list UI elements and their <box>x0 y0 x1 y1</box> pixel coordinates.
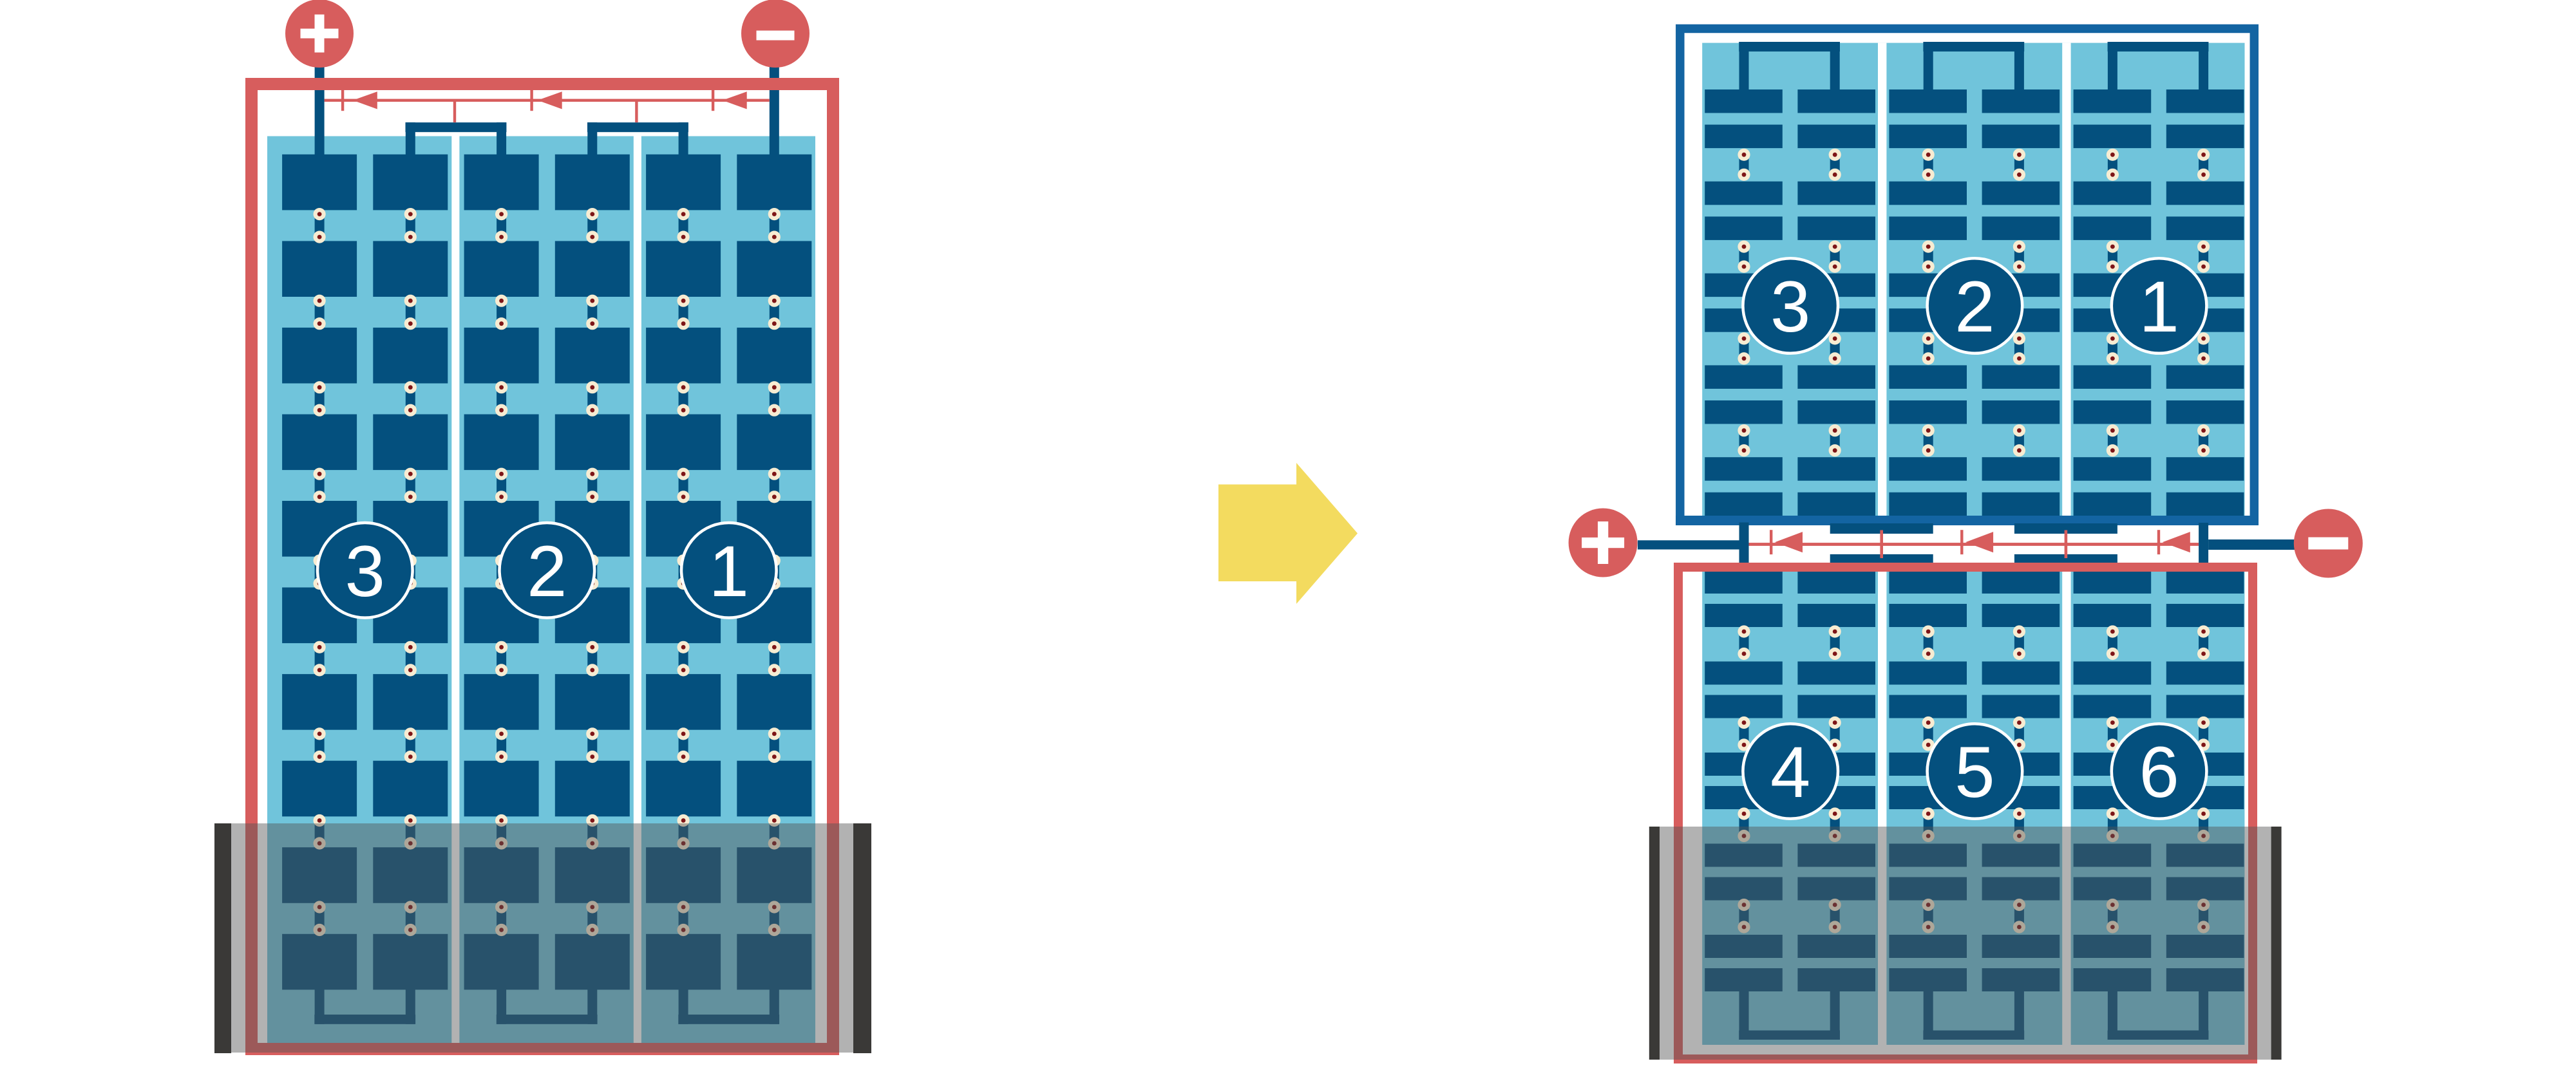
svg-text:6: 6 <box>2139 732 2179 812</box>
svg-text:3: 3 <box>1770 267 1810 347</box>
svg-text:3: 3 <box>345 531 385 612</box>
svg-text:2: 2 <box>1955 267 1994 347</box>
svg-text:4: 4 <box>1770 732 1810 812</box>
svg-text:5: 5 <box>1955 732 1994 812</box>
svg-text:1: 1 <box>2139 267 2179 347</box>
svg-text:2: 2 <box>527 531 567 612</box>
svg-text:1: 1 <box>709 531 749 612</box>
